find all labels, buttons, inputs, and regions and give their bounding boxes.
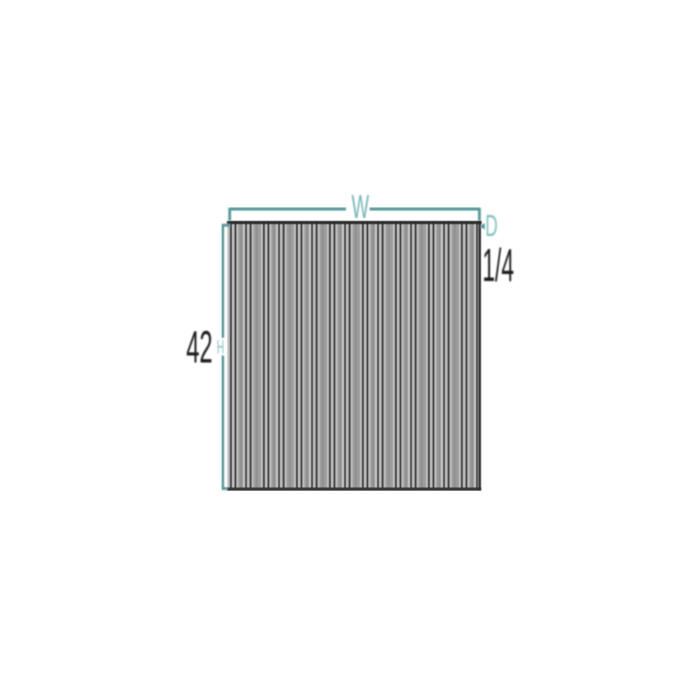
- svg-text:42: 42: [186, 322, 212, 373]
- svg-text:W: W: [352, 188, 370, 225]
- svg-text:D: D: [485, 208, 497, 243]
- svg-text:1/4: 1/4: [482, 239, 514, 291]
- svg-text:H: H: [217, 336, 224, 358]
